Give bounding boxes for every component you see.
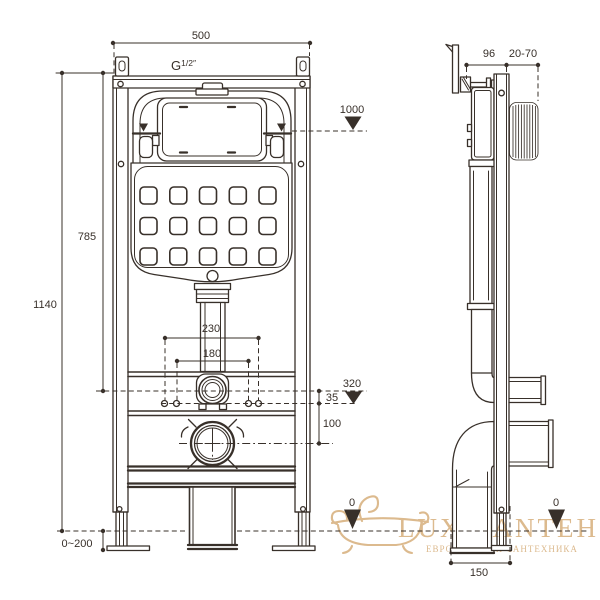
level-1000-label: 1000: [340, 104, 364, 116]
dim-35-label: 35: [326, 392, 338, 404]
front-view: [107, 57, 315, 551]
side-view: [446, 45, 553, 554]
dim-96-2070: 96 20-70: [464, 48, 540, 67]
drain-box: [188, 487, 237, 549]
dim-width-500: 500: [111, 30, 312, 45]
foot-plate-side: [492, 546, 512, 551]
wall-section: [510, 103, 539, 161]
dim-96-label: 96: [483, 48, 495, 60]
level-marker-icon: [345, 117, 362, 131]
dim-150: 150: [449, 561, 512, 579]
watermark-brand: LUX-SANTEH: [398, 513, 599, 543]
dim-180: 180: [175, 348, 251, 363]
dim-100-label: 100: [323, 418, 341, 430]
flush-connector: [509, 376, 546, 405]
dim-785-label: 785: [78, 231, 96, 243]
hanger-tab-left: [116, 57, 129, 76]
level-marker-icon: [345, 392, 362, 405]
dim-35-100: 35 100: [317, 389, 341, 446]
frame-profile: [494, 74, 509, 513]
dim-height-785: 785: [78, 71, 105, 393]
dim-500-label: 500: [192, 30, 210, 42]
dim-1140-label: 1140: [33, 299, 57, 311]
dim-20-70-label: 20-70: [509, 48, 537, 60]
zero-side-label: 0: [553, 497, 559, 509]
zero-front-label: 0: [349, 497, 355, 509]
hanger-tab-right: [297, 57, 310, 76]
dim-0-200-label: 0~200: [62, 538, 93, 550]
access-window: [158, 98, 267, 161]
foot-plate-right: [273, 546, 316, 551]
technical-drawing-page: LUX-SANTEH ЕВРОПЕЙСКАЯ САНТЕХНИКА: [0, 0, 600, 600]
installation-frame-drawing: LUX-SANTEH ЕВРОПЕЙСКАЯ САНТЕХНИКА: [0, 0, 600, 600]
dim-230: 230: [163, 323, 261, 340]
dim-180-label: 180: [203, 348, 221, 360]
flush-bend-holder: [197, 374, 229, 410]
thread-size-label: G1/2″: [171, 58, 196, 73]
waste-connector: [509, 420, 553, 468]
level-320-label: 320: [343, 378, 361, 390]
waste-elbow: [451, 422, 495, 554]
level-1000: 1000: [340, 104, 364, 130]
dim-floor-adjust: 0~200: [62, 529, 106, 552]
cistern-body: [131, 163, 292, 282]
foot-plate-left: [107, 546, 150, 551]
cistern-side: [468, 88, 497, 403]
thread-sup: 1/2″: [181, 58, 196, 68]
dim-height-1140: 1140: [33, 71, 113, 533]
cistern-arch: [133, 83, 291, 170]
dim-230-label: 230: [202, 323, 220, 335]
zero-level-front: 0: [344, 497, 361, 529]
dim-150-label: 150: [470, 567, 488, 579]
thread-base: G: [171, 58, 181, 73]
